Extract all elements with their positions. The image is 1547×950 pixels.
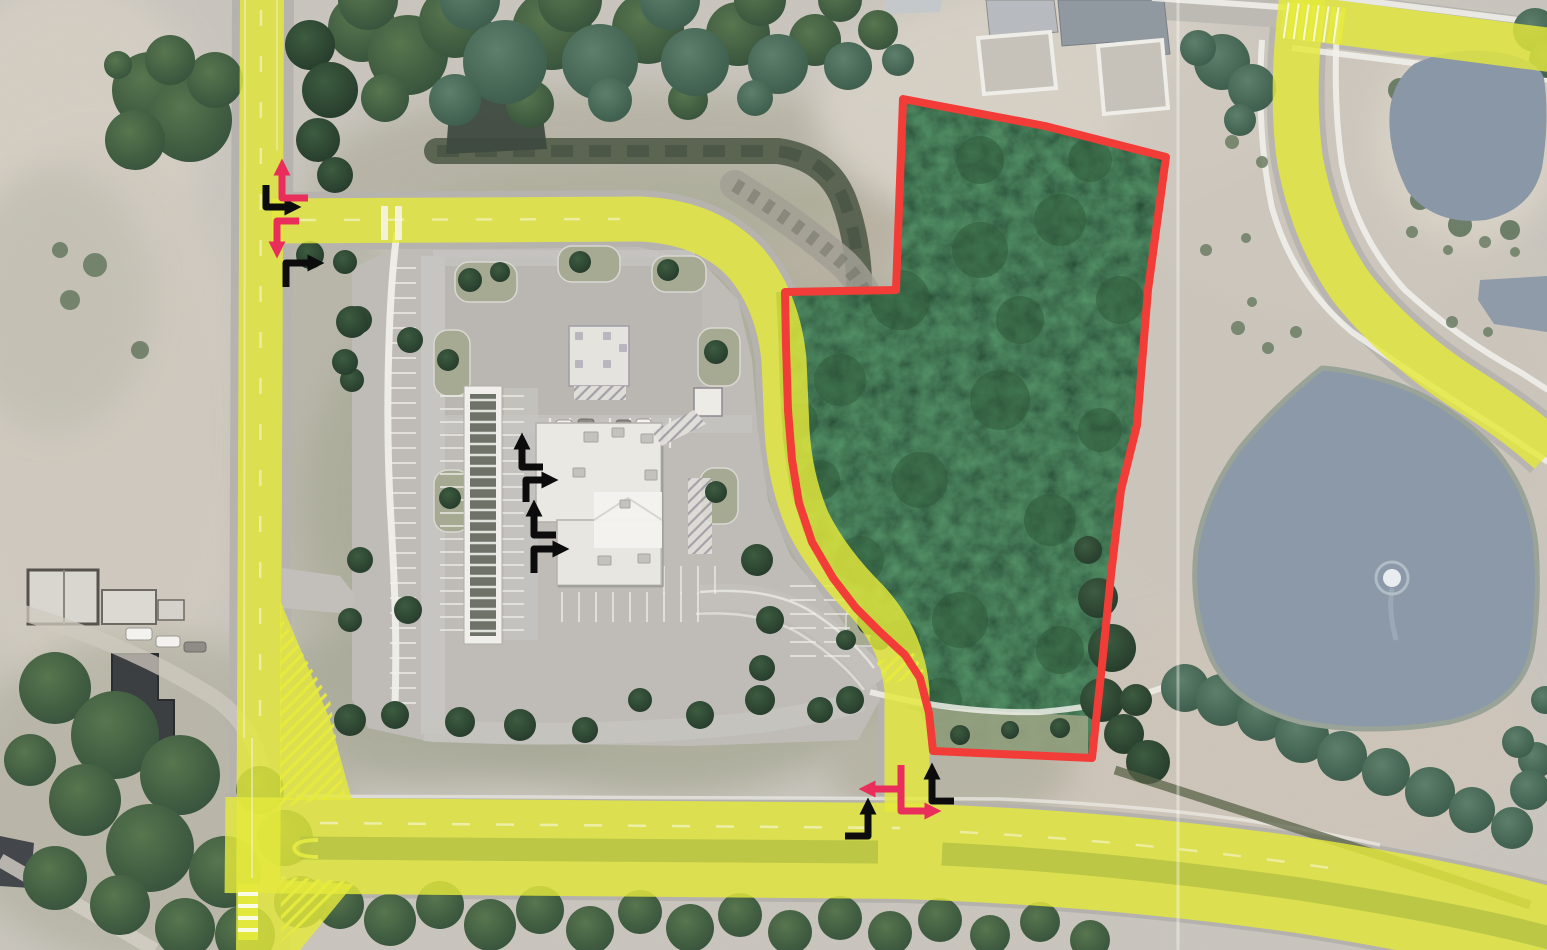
bush-row-site-south <box>628 688 652 712</box>
tree-row-sidewalk-west <box>333 250 357 274</box>
tree-cluster-road-east-top <box>317 157 353 193</box>
trail-trees-parcel-south <box>1001 721 1019 739</box>
island-bushes <box>458 268 482 292</box>
shrub-dots-east-meadow <box>1200 244 1212 256</box>
tree-cluster-sw <box>140 735 220 815</box>
rooftop-unit <box>598 556 611 565</box>
home-2-yard <box>1098 40 1168 114</box>
tree-band-pond-shore <box>1502 726 1534 758</box>
home-1-yard <box>978 32 1056 94</box>
tree-row-sidewalk-west <box>394 596 422 624</box>
tree-band-top-teal <box>429 74 481 126</box>
shrub-dots-east-meadow <box>1225 135 1239 149</box>
tree-band-top-teal <box>737 80 773 116</box>
shrub-dots-east-meadow <box>1406 226 1418 238</box>
tree-band-bottom <box>1020 902 1060 942</box>
tree-cluster-sw <box>4 734 56 786</box>
island-bushes <box>704 340 728 364</box>
island-bushes <box>439 487 461 509</box>
tree-cluster-ne-corner <box>1180 30 1216 66</box>
tree-row-sidewalk-west <box>397 327 423 353</box>
tree-cluster-road-east-top <box>296 118 340 162</box>
shrub-dots-east-meadow <box>1443 245 1453 255</box>
crosswalk-west-sidewalk <box>381 206 388 240</box>
trail-trees-parcel-south <box>950 725 970 745</box>
bush-cluster-site-east <box>756 606 784 634</box>
bush-row-site-south <box>504 709 536 741</box>
aerial-map[interactable] <box>0 0 1547 950</box>
island-bushes <box>569 251 591 273</box>
utility-pad-posts <box>603 360 611 368</box>
shrub-dots-east-meadow <box>1483 327 1493 337</box>
shrubs-west-field <box>52 242 68 258</box>
utility-pad-posts <box>575 360 583 368</box>
bush-row-site-south <box>572 717 598 743</box>
utility-pad-posts <box>575 332 583 340</box>
tree-band-bottom <box>666 904 714 950</box>
shrubs-west-field <box>131 341 149 359</box>
rooftop-unit <box>638 554 650 563</box>
shrubs-west-field <box>60 290 80 310</box>
tree-band-pond-shore <box>1317 731 1367 781</box>
shrub-dots-east-meadow <box>1262 342 1274 354</box>
rooftop-unit <box>641 434 653 443</box>
bush-cluster-site-east <box>836 686 864 714</box>
parked-car <box>156 636 180 647</box>
bush-row-site-south <box>381 701 409 729</box>
tree-band-bottom <box>464 899 516 950</box>
tree-band-bottom <box>718 893 762 937</box>
rooftop-unit <box>584 432 598 442</box>
island-bushes <box>657 259 679 281</box>
bush-row-site-south <box>334 704 366 736</box>
tree-cluster-ne-corner <box>1224 104 1256 136</box>
tree-cluster-road-east-top <box>302 62 358 118</box>
tree-band-pond-shore <box>1491 807 1533 849</box>
tree-band-top <box>858 10 898 50</box>
tree-row-sidewalk-west <box>332 349 358 375</box>
tree-cluster-sw <box>49 764 121 836</box>
median-south-road-west <box>300 848 878 852</box>
tree-band-top <box>361 74 409 122</box>
shrub-dots-east-meadow <box>1479 236 1491 248</box>
shrubs-west-field <box>83 253 107 277</box>
tree-band-top-teal <box>661 28 729 96</box>
utility-pad-posts <box>619 344 627 352</box>
tree-band-top-teal <box>824 42 872 90</box>
shrub-dots-east-meadow <box>1231 321 1245 335</box>
bush-row-site-south <box>745 685 775 715</box>
rooftop-unit <box>645 470 657 480</box>
rooftop-unit <box>620 500 630 508</box>
tree-band-pond-shore <box>1405 767 1455 817</box>
bush-row-site-south <box>686 701 714 729</box>
shrub-dots-east-meadow <box>1510 247 1520 257</box>
parked-car-dark <box>184 642 206 652</box>
bush-cluster-site-east <box>749 655 775 681</box>
tree-row-sidewalk-west <box>347 547 373 573</box>
shrub-dots-east-meadow <box>1256 156 1268 168</box>
crosswalk-hatch-ne-intersection <box>1280 2 1346 44</box>
tree-cluster-sw <box>23 846 87 910</box>
canopy-structure-grid <box>470 394 496 636</box>
tree-band-pond-shore <box>1449 787 1495 833</box>
shed-building-2 <box>158 600 184 620</box>
shed-building <box>102 590 156 624</box>
tree-row-sidewalk-west <box>338 608 362 632</box>
tree-band-top-teal <box>588 78 632 122</box>
bush-cluster-site-east <box>741 544 773 576</box>
tree-band-bottom <box>918 898 962 942</box>
tree-band-bottom <box>364 894 416 946</box>
nw-roofs-partial <box>886 0 942 14</box>
island-bushes <box>836 630 856 650</box>
shrub-dots-east-meadow <box>1290 326 1302 338</box>
pond-upper <box>1389 51 1546 221</box>
pond-fountain <box>1383 569 1401 587</box>
island-bushes <box>437 349 459 371</box>
ne-kiosk <box>694 388 722 416</box>
crossing-band-south <box>238 884 258 940</box>
tree-band-east-of-parcel <box>1088 624 1136 672</box>
aerial-map-stage <box>0 0 1547 950</box>
tree-cluster-nw <box>104 51 132 79</box>
tree-band-east-of-parcel <box>1074 536 1102 564</box>
shrubs-upper-pond <box>1500 220 1520 240</box>
tree-band-top-teal <box>882 44 914 76</box>
tree-band-pond-shore <box>1362 748 1410 796</box>
tree-cluster-nw <box>145 35 195 85</box>
tree-cluster-nw <box>105 110 165 170</box>
rooftop-unit <box>573 468 585 477</box>
tree-band-east-of-parcel <box>1120 684 1152 716</box>
tree-band-bottom <box>818 896 862 940</box>
shrub-dots-east-meadow <box>1241 233 1251 243</box>
utility-pad-hatch <box>574 386 626 400</box>
tree-row-sidewalk-west <box>336 306 368 338</box>
trail-trees-parcel-south <box>1050 718 1070 738</box>
bush-row-site-south <box>445 707 475 737</box>
shrub-dots-east-meadow <box>1446 316 1458 328</box>
shrub-dots-east-meadow <box>1247 297 1257 307</box>
tree-cluster-nw <box>187 52 243 108</box>
crosswalk-west-sidewalk <box>395 206 402 240</box>
utility-pad-posts <box>603 332 611 340</box>
bush-row-site-south <box>807 697 833 723</box>
rooftop-unit <box>612 428 624 437</box>
parked-car <box>126 628 152 640</box>
tree-cluster-sw <box>90 875 150 935</box>
island-bushes <box>705 481 727 503</box>
island-bushes <box>490 262 510 282</box>
edge-line-main-west <box>244 0 245 738</box>
